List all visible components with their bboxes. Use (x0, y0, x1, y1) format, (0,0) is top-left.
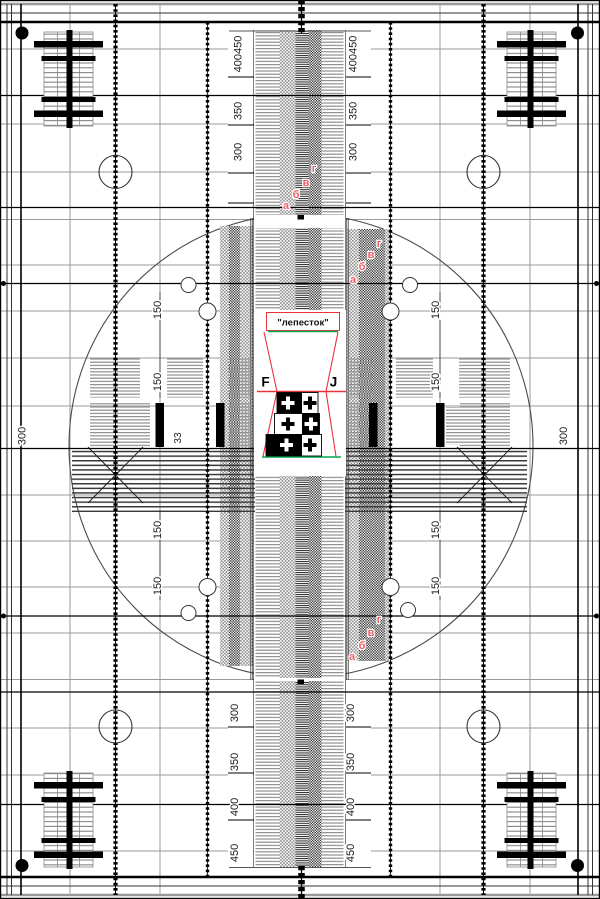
res-label-top-left-400450: 400450 (233, 36, 245, 73)
strip-letter-a: а (350, 274, 357, 286)
inner-150-label: 150 (430, 373, 442, 391)
strip-letter-g: г (312, 163, 317, 175)
bar-33-label: 33 (173, 432, 184, 444)
strip-letter-a: а (349, 651, 356, 663)
res-label-bottom-left-400: 400 (229, 798, 241, 816)
inner-150-label: 150 (152, 521, 164, 539)
inner-150-label: 150 (430, 577, 442, 595)
black-bar (369, 403, 378, 447)
black-bar (436, 403, 445, 447)
strip-letter-b: б (293, 189, 300, 201)
res-label-bottom-right-350: 350 (345, 753, 357, 771)
res-label-top-left-300: 300 (233, 143, 245, 161)
letter-j: J (330, 375, 338, 390)
black-bar (216, 403, 225, 447)
res-label-bottom-left-300: 300 (229, 704, 241, 722)
res-label-bottom-right-400: 400 (345, 798, 357, 816)
corner-figure-top-right (497, 30, 566, 128)
strip-letter-b: б (359, 640, 366, 652)
inner-150-label: 150 (430, 301, 442, 319)
res-label-bottom-left-350: 350 (229, 753, 241, 771)
resolution-test-chart: 400450 350 300 400450 350 300 300 350 40… (0, 0, 600, 899)
petal-feature: "лепесток" F J (254, 310, 346, 476)
res-label-bottom-left-450: 450 (229, 844, 241, 862)
edge-300-label-right: 300 (558, 427, 570, 445)
strip-letter-v: в (368, 627, 375, 639)
inner-150-label: 150 (430, 521, 442, 539)
inner-150-label: 150 (152, 577, 164, 595)
res-label-top-right-300: 300 (348, 143, 360, 161)
strip-letter-b: б (359, 261, 366, 273)
res-label-top-right-350: 350 (348, 102, 360, 120)
res-label-bottom-right-300: 300 (345, 704, 357, 722)
strip-letter-a: а (283, 200, 290, 212)
res-label-top-left-350: 350 (233, 102, 245, 120)
inner-150-label: 150 (152, 301, 164, 319)
res-label-top-right-400450: 400450 (348, 36, 360, 73)
res-label-bottom-right-450: 450 (345, 844, 357, 862)
corner-figure-top-left (34, 30, 103, 128)
strip-letter-v: в (368, 249, 375, 261)
test-chart-page: 400450 350 300 400450 350 300 300 350 40… (0, 0, 600, 899)
letter-f: F (261, 375, 269, 390)
corner-figure-bottom-left (34, 771, 103, 869)
strip-letter-g: г (377, 614, 382, 626)
black-bar (156, 403, 165, 447)
inner-150-label: 150 (152, 373, 164, 391)
strip-letter-g: г (377, 238, 382, 250)
strip-letter-v: в (303, 177, 310, 189)
corner-figure-bottom-right (497, 771, 566, 869)
petal-label: "лепесток" (277, 318, 328, 329)
edge-300-label-left: 300 (17, 427, 29, 445)
